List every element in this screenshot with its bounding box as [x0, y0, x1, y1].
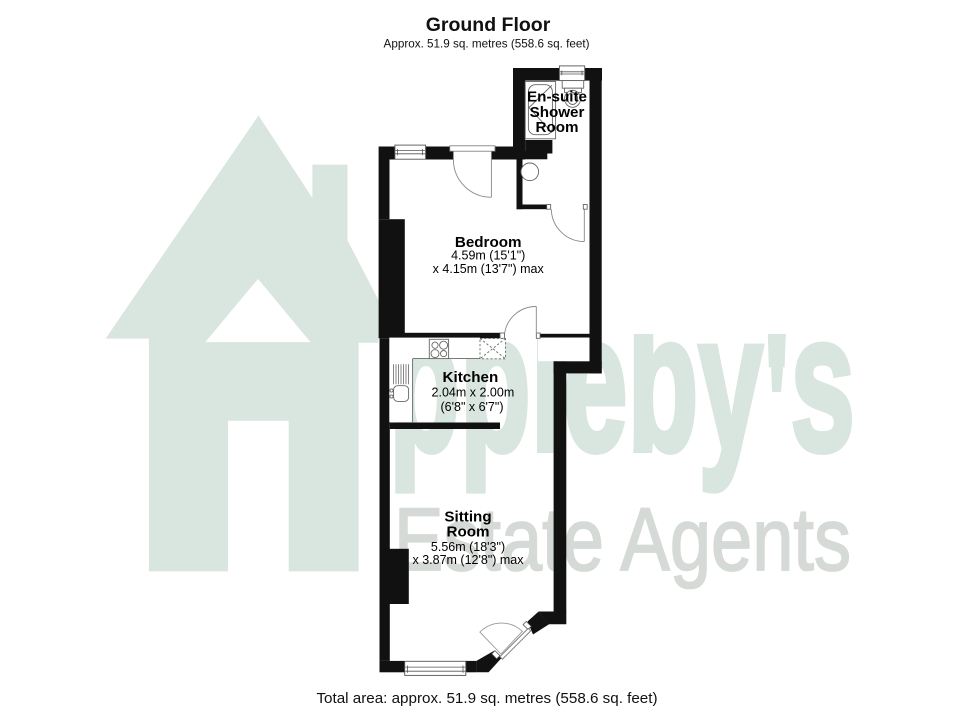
svg-text:4.59m (15'1"): 4.59m (15'1")	[451, 249, 525, 263]
svg-text:x 4.15m (13'7") max: x 4.15m (13'7") max	[433, 262, 545, 276]
svg-text:2.04m x 2.00m: 2.04m x 2.00m	[432, 386, 515, 400]
svg-text:(6'8" x 6'7"): (6'8" x 6'7")	[441, 400, 504, 414]
svg-text:Room: Room	[535, 119, 578, 136]
svg-text:Approx. 51.9 sq. metres (558.6: Approx. 51.9 sq. metres (558.6 sq. feet)	[384, 37, 590, 50]
svg-text:Total area: approx. 51.9 sq. m: Total area: approx. 51.9 sq. metres (558…	[316, 690, 657, 707]
svg-text:Kitchen: Kitchen	[443, 369, 499, 386]
svg-text:Ground Floor: Ground Floor	[426, 14, 551, 36]
svg-text:x 3.87m (12'8") max: x 3.87m (12'8") max	[412, 553, 524, 567]
svg-text:5.56m (18'3"): 5.56m (18'3")	[431, 540, 505, 554]
svg-text:Room: Room	[446, 523, 489, 540]
